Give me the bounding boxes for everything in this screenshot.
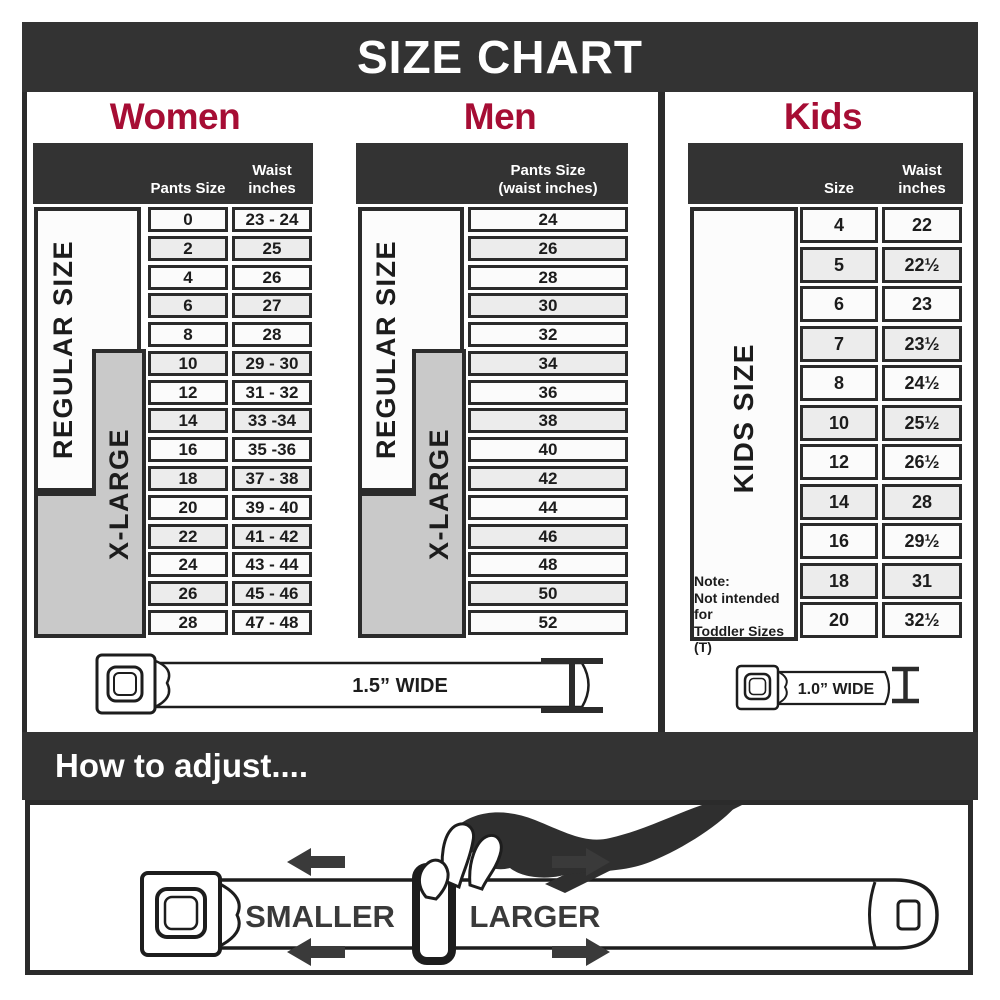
table-cell: 42 <box>468 466 628 491</box>
table-cell: 46 <box>468 524 628 549</box>
adult-belt-illustration: 1.5” WIDE <box>95 650 615 720</box>
kids-note-line1: Note: <box>694 573 796 590</box>
table-cell: 16 <box>800 523 878 559</box>
table-cell: 23 <box>882 286 962 322</box>
table-cell: 29 - 30 <box>232 351 312 376</box>
kids-table-header: Size Waist inches <box>688 143 963 204</box>
table-cell: 26 <box>148 581 228 606</box>
kids-belt-width-ibeam <box>892 669 919 701</box>
kids-col-waist: Waist inches <box>882 162 962 198</box>
table-cell: 0 <box>148 207 228 232</box>
table-cell: 14 <box>148 408 228 433</box>
table-cell: 8 <box>148 322 228 347</box>
page-title: SIZE CHART <box>357 30 643 84</box>
kids-size-label: KIDS SIZE <box>728 343 760 493</box>
section-divider <box>658 92 665 732</box>
table-cell: 12 <box>148 380 228 405</box>
table-cell: 18 <box>800 563 878 599</box>
women-table-header: Pants Size Waist inches <box>33 143 313 204</box>
table-cell: 5 <box>800 247 878 283</box>
adult-belt-width-label: 1.5” WIDE <box>352 675 448 697</box>
table-cell: 50 <box>468 581 628 606</box>
table-cell: 8 <box>800 365 878 401</box>
table-cell: 22½ <box>882 247 962 283</box>
women-section-title: Women <box>60 96 290 138</box>
table-cell: 6 <box>148 293 228 318</box>
table-cell: 26½ <box>882 444 962 480</box>
table-cell: 16 <box>148 437 228 462</box>
men-col-pants-size: Pants Size (waist inches) <box>468 162 628 198</box>
table-cell: 28 <box>232 322 312 347</box>
adjust-illustration: SMALLER LARGER <box>30 805 968 970</box>
table-cell: 23 - 24 <box>232 207 312 232</box>
table-cell: 12 <box>800 444 878 480</box>
table-cell: 14 <box>800 484 878 520</box>
title-banner: SIZE CHART <box>22 22 978 92</box>
table-cell: 38 <box>468 408 628 433</box>
table-cell: 45 - 46 <box>232 581 312 606</box>
kids-size-label-wrap: KIDS SIZE <box>690 248 798 588</box>
table-cell: 33 -34 <box>232 408 312 433</box>
table-cell: 18 <box>148 466 228 491</box>
table-cell: 40 <box>468 437 628 462</box>
table-cell: 24 <box>148 552 228 577</box>
table-cell: 30 <box>468 293 628 318</box>
table-cell: 29½ <box>882 523 962 559</box>
men-xlarge-label-wrap: X-LARGE <box>412 349 466 639</box>
table-cell: 27 <box>232 293 312 318</box>
table-cell: 31 <box>882 563 962 599</box>
kids-belt-width-label: 1.0” WIDE <box>798 681 875 698</box>
table-cell: 43 - 44 <box>232 552 312 577</box>
smaller-label: SMALLER <box>245 899 395 934</box>
kids-note-line3: Toddler Sizes (T) <box>694 623 796 656</box>
table-cell: 22 <box>148 524 228 549</box>
table-cell: 10 <box>800 405 878 441</box>
table-cell: 36 <box>468 380 628 405</box>
adult-belt-buckle <box>97 655 169 713</box>
women-col-pants-size: Pants Size <box>148 180 228 198</box>
kids-note-line2: Not intended for <box>694 590 796 623</box>
table-cell: 39 - 40 <box>232 495 312 520</box>
larger-label: LARGER <box>470 899 601 934</box>
table-cell: 28 <box>882 484 962 520</box>
table-cell: 48 <box>468 552 628 577</box>
women-col-waist: Waist inches <box>232 162 312 198</box>
table-cell: 32½ <box>882 602 962 638</box>
table-cell: 47 - 48 <box>232 610 312 635</box>
table-cell: 35 -36 <box>232 437 312 462</box>
size-chart-page: SIZE CHART Women Men Kids Pants Size Wai… <box>0 0 1000 1000</box>
table-cell: 26 <box>468 236 628 261</box>
table-cell: 10 <box>148 351 228 376</box>
adjust-title: How to adjust.... <box>22 747 308 785</box>
women-size-table: Pants Size Waist inches REGULAR SIZE X-L… <box>33 143 313 639</box>
table-cell: 2 <box>148 236 228 261</box>
kids-note: Note: Not intended for Toddler Sizes (T) <box>694 573 796 656</box>
table-cell: 41 - 42 <box>232 524 312 549</box>
adjust-banner: How to adjust.... <box>22 732 978 800</box>
table-cell: 7 <box>800 326 878 362</box>
kids-size-table: Size Waist inches KIDS SIZE Note: Not in… <box>688 143 963 641</box>
women-xlarge-label-wrap: X-LARGE <box>92 349 146 639</box>
table-cell: 28 <box>468 265 628 290</box>
table-cell: 4 <box>800 207 878 243</box>
kids-section-title: Kids <box>708 96 938 138</box>
belt-tip-hole <box>898 901 919 929</box>
men-table-header: Pants Size (waist inches) <box>356 143 628 204</box>
women-regular-size-label-wrap: REGULAR SIZE <box>34 207 92 492</box>
men-regular-size-label: REGULAR SIZE <box>371 240 402 459</box>
table-cell: 23½ <box>882 326 962 362</box>
table-cell: 20 <box>800 602 878 638</box>
women-xlarge-label: X-LARGE <box>104 428 135 560</box>
table-cell: 34 <box>468 351 628 376</box>
adjust-illustration-box: SMALLER LARGER <box>25 800 973 975</box>
table-cell: 22 <box>882 207 962 243</box>
table-cell: 52 <box>468 610 628 635</box>
men-regular-size-label-wrap: REGULAR SIZE <box>358 207 414 492</box>
men-section-title: Men <box>385 96 615 138</box>
adjust-belt-buckle <box>142 873 239 955</box>
table-cell: 32 <box>468 322 628 347</box>
men-size-table: Pants Size (waist inches) REGULAR SIZE X… <box>356 143 628 639</box>
table-cell: 26 <box>232 265 312 290</box>
table-cell: 20 <box>148 495 228 520</box>
kids-belt-buckle <box>737 666 787 709</box>
table-cell: 24 <box>468 207 628 232</box>
table-cell: 44 <box>468 495 628 520</box>
table-cell: 24½ <box>882 365 962 401</box>
table-cell: 6 <box>800 286 878 322</box>
kids-belt-illustration: 1.0” WIDE <box>735 660 935 715</box>
table-cell: 25½ <box>882 405 962 441</box>
women-regular-size-label: REGULAR SIZE <box>48 240 79 459</box>
table-cell: 25 <box>232 236 312 261</box>
table-cell: 37 - 38 <box>232 466 312 491</box>
kids-col-size: Size <box>800 180 878 198</box>
table-cell: 4 <box>148 265 228 290</box>
men-xlarge-label: X-LARGE <box>424 428 455 560</box>
table-cell: 31 - 32 <box>232 380 312 405</box>
table-cell: 28 <box>148 610 228 635</box>
